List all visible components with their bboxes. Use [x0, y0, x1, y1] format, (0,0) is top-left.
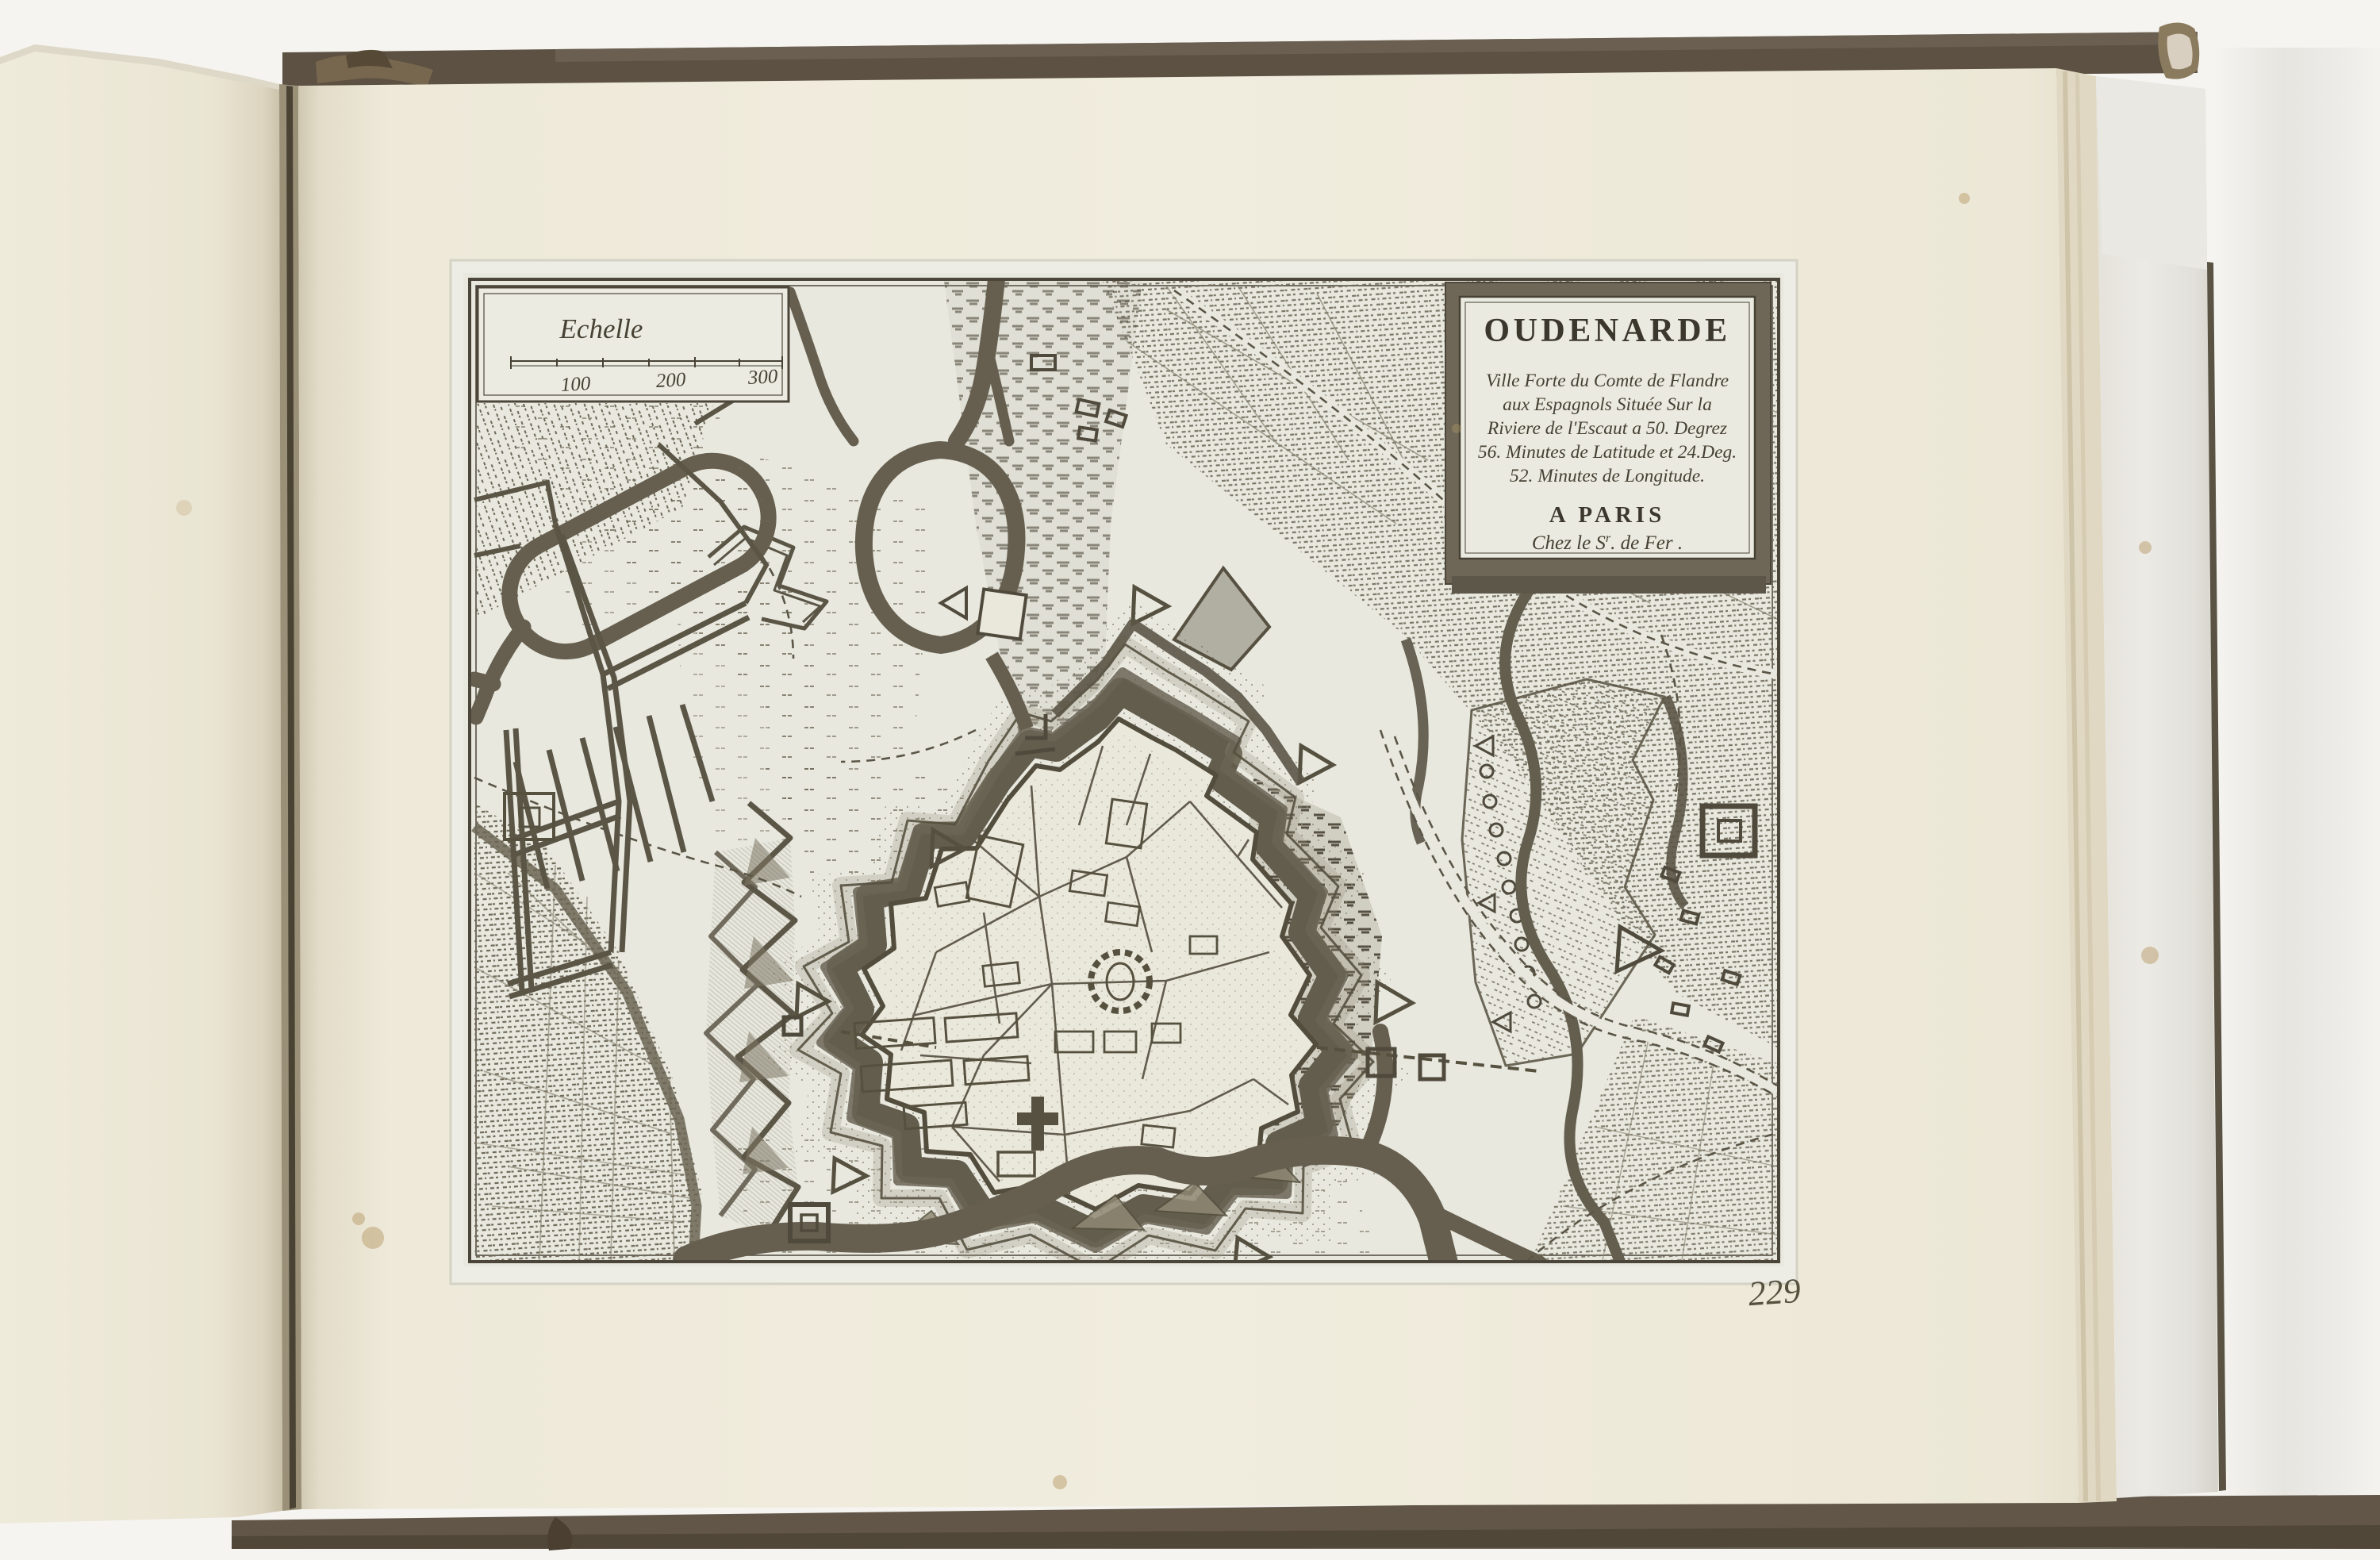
- svg-text:229: 229: [1747, 1271, 1802, 1313]
- svg-text:56. Minutes de Latitude et 24.: 56. Minutes de Latitude et 24.Deg.: [1478, 442, 1737, 463]
- svg-text:A PARIS: A PARIS: [1549, 502, 1665, 528]
- svg-text:300: 300: [747, 366, 778, 389]
- svg-text:100: 100: [560, 373, 591, 396]
- svg-text:OUDENARDE: OUDENARDE: [1484, 313, 1730, 349]
- svg-text:200: 200: [655, 369, 686, 392]
- svg-text:aux Espagnols Située Sur la: aux Espagnols Située Sur la: [1503, 394, 1712, 415]
- svg-text:Ville Forte du Comte de Flandr: Ville Forte du Comte de Flandre: [1486, 371, 1729, 391]
- svg-text:52. Minutes de Longitude.: 52. Minutes de Longitude.: [1510, 466, 1705, 486]
- svg-text:Riviere de l'Escaut a 50. Degr: Riviere de l'Escaut a 50. Degrez: [1487, 418, 1727, 439]
- svg-text:Echelle: Echelle: [559, 313, 643, 344]
